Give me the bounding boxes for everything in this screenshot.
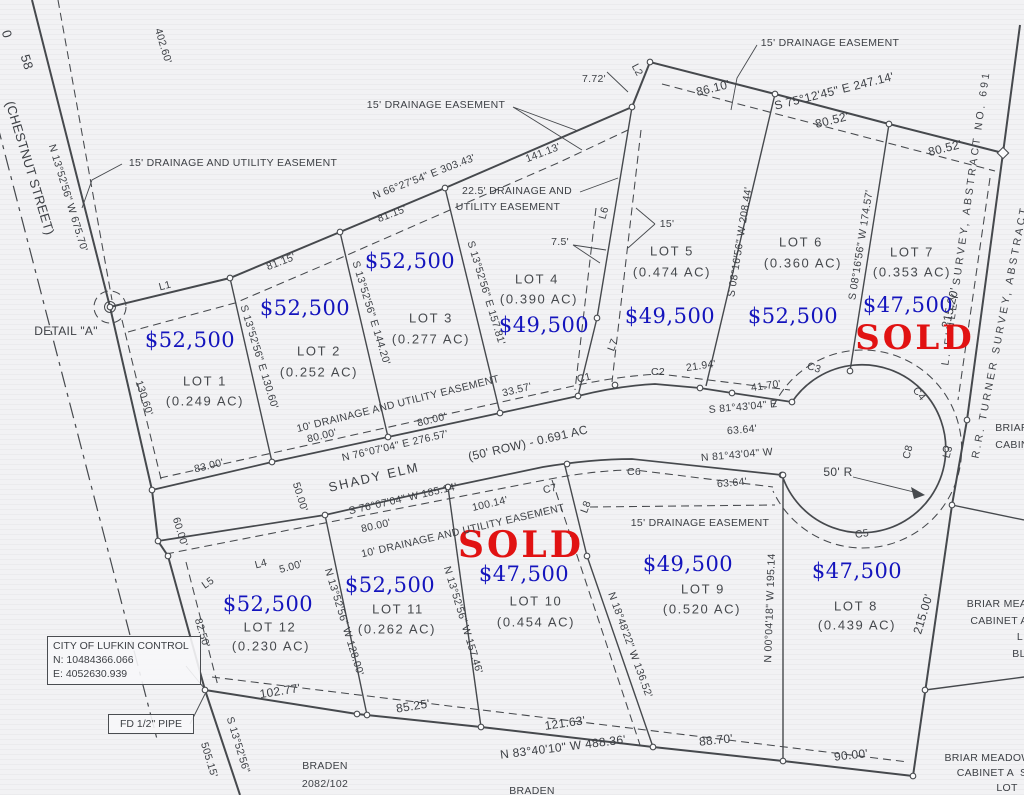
dim-7-72: 7.72' — [582, 73, 606, 85]
lot7-area: (0.353 AC) — [873, 265, 951, 280]
leader-15-lot5 — [628, 208, 655, 248]
lot2-price: $52,500 — [260, 296, 350, 320]
control-box-northing: N: 10484366.066 — [53, 653, 195, 667]
lot5-title: LOT 5 — [650, 244, 694, 259]
curve-c2: C2 — [651, 366, 665, 378]
lot8-area: (0.439 AC) — [818, 618, 896, 633]
lot11-title: LOT 11 — [372, 602, 424, 617]
easement-22-label-1: 22.5' DRAINAGE AND — [462, 185, 572, 197]
detail-a-label: DETAIL "A" — [34, 324, 98, 338]
easement-n-label: 15' DRAINAGE EASEMENT — [367, 99, 505, 111]
control-box-easting: E: 4052630.939 — [53, 667, 195, 681]
lot2-area: (0.252 AC) — [280, 365, 358, 380]
lot1-area: (0.249 AC) — [166, 394, 244, 409]
briar-frag-1b: CABIN — [995, 439, 1024, 451]
lot1-title: LOT 1 — [183, 374, 227, 389]
survey-corner-diamond — [997, 147, 1008, 158]
lot10-price: $47,500 — [479, 562, 569, 586]
lot12-area: (0.230 AC) — [232, 639, 310, 654]
lot3-area: (0.277 AC) — [392, 332, 470, 347]
briar-frag-3c: LOT — [996, 782, 1017, 794]
tick-7-72 — [607, 72, 628, 92]
lot9-price: $49,500 — [643, 552, 733, 576]
control-point-box: CITY OF LUFKIN CONTROL N: 10484366.066 E… — [47, 636, 201, 685]
leader-nw-easement — [82, 164, 122, 208]
lot4-price: $49,500 — [499, 313, 589, 337]
lot8-title: LOT 8 — [834, 599, 878, 614]
lot6-price: $52,500 — [748, 304, 838, 328]
briar-frag-2a: BRIAR MEA — [967, 598, 1024, 610]
leader-ne-easement — [731, 45, 757, 110]
braden-label-1b: 2082/102 — [302, 778, 348, 790]
dashed-cul-de-sac-ring — [773, 350, 962, 548]
lot10-area: (0.454 AC) — [497, 615, 575, 630]
lot3-price: $52,500 — [365, 249, 455, 273]
lot4-title: LOT 4 — [515, 272, 559, 287]
dim-15-lot5: 15' — [660, 218, 675, 230]
curve-c5: C5 — [854, 527, 870, 541]
dashed-chestnut-ref — [58, 0, 112, 300]
lot11-price: $52,500 — [345, 573, 435, 597]
briar-branch-upper — [952, 505, 1024, 520]
lot3-title: LOT 3 — [409, 311, 453, 326]
lot10-title: LOT 10 — [510, 594, 563, 609]
pipe-marker-box: FD 1/2" PIPE — [108, 714, 194, 734]
lot9-area: (0.520 AC) — [663, 602, 741, 617]
lot9-title: LOT 9 — [681, 582, 725, 597]
leader-radius-arrow — [853, 477, 922, 494]
briar-frag-1a: BRIAR — [995, 422, 1024, 434]
radius-50: 50' R — [823, 465, 852, 479]
lot11-area: (0.262 AC) — [358, 622, 436, 637]
lot6-area: (0.360 AC) — [764, 256, 842, 271]
lot2-title: LOT 2 — [297, 344, 341, 359]
briar-frag-3b: CABINET A S — [957, 767, 1024, 779]
lot7-sold: SOLD — [855, 318, 975, 358]
boundary-lot8-east — [913, 505, 952, 776]
lot12-title: LOT 12 — [244, 620, 297, 635]
dashed-lot10-9-companion — [552, 480, 640, 745]
lot6-title: LOT 6 — [779, 235, 823, 250]
leader-22-easement — [580, 178, 618, 192]
lot1-price: $52,500 — [145, 328, 235, 352]
briar-frag-2b: CABINET A — [970, 615, 1024, 627]
radius-arrowhead — [911, 487, 925, 499]
easement-ne-label: 15' DRAINAGE EASEMENT — [761, 37, 899, 49]
braden-label-2: BRADEN — [509, 785, 555, 795]
easement-15-south: 15' DRAINAGE EASEMENT — [631, 517, 769, 529]
lot12-price: $52,500 — [223, 592, 313, 616]
briar-frag-2c: L — [1017, 631, 1023, 643]
lot4-area: (0.390 AC) — [500, 292, 578, 307]
control-box-title: CITY OF LUFKIN CONTROL — [53, 639, 195, 653]
divider-lot4-east — [578, 107, 632, 396]
plat-map: 402.60'058(CHESTNUT STREET)N 13°52'56" W… — [0, 0, 1024, 795]
briar-frag-3a: BRIAR MEADOW — [944, 752, 1024, 764]
lot8-price: $47,500 — [812, 559, 902, 583]
lot5-area: (0.474 AC) — [633, 265, 711, 280]
pipe-marker-label: FD 1/2" PIPE — [120, 718, 182, 730]
easement-22-label-2: UTILITY EASEMENT — [456, 201, 560, 213]
lot7-title: LOT 7 — [890, 245, 934, 260]
dim-7-5: 7.5' — [551, 236, 569, 248]
dashed-lot9-north — [590, 505, 775, 507]
easement-nw-label: 15' DRAINAGE AND UTILITY EASEMENT — [129, 157, 337, 169]
curve-c6: C6 — [627, 466, 641, 478]
lot5-price: $49,500 — [625, 304, 715, 328]
lot7-price: $47,500 — [863, 293, 953, 317]
briar-branch-lower — [925, 677, 1024, 690]
row-north — [152, 384, 792, 490]
braden-label-1a: BRADEN — [302, 760, 348, 772]
briar-frag-2d: BL — [1012, 648, 1024, 660]
